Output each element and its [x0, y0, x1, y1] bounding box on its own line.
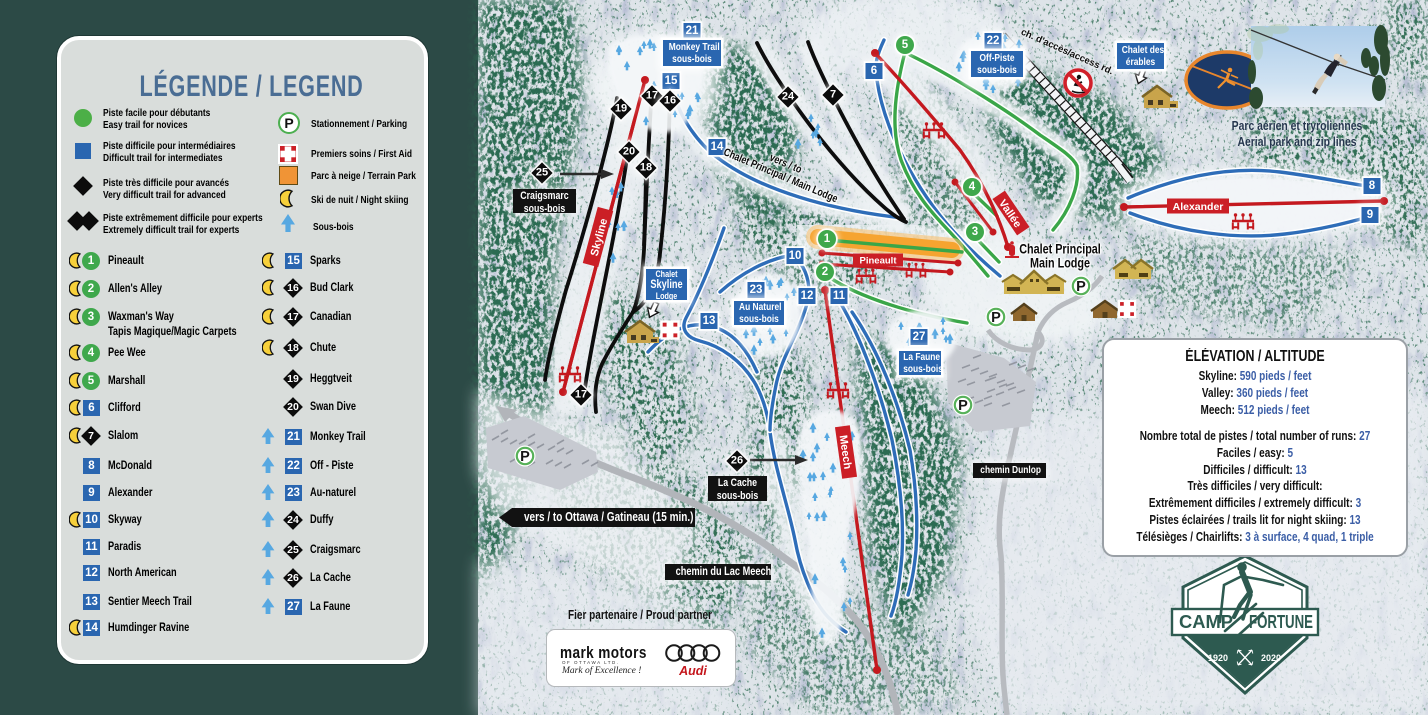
svg-text:CAMP: CAMP	[1179, 612, 1233, 632]
svg-text:2020: 2020	[1261, 653, 1281, 663]
svg-text:Pineault: Pineault	[860, 256, 898, 267]
svg-text:FORTUNE: FORTUNE	[1249, 612, 1313, 632]
svg-text:Audi: Audi	[678, 664, 707, 678]
svg-text:Alexander: Alexander	[1173, 201, 1224, 213]
svg-text:P: P	[284, 115, 293, 131]
svg-text:1920: 1920	[1208, 653, 1228, 663]
